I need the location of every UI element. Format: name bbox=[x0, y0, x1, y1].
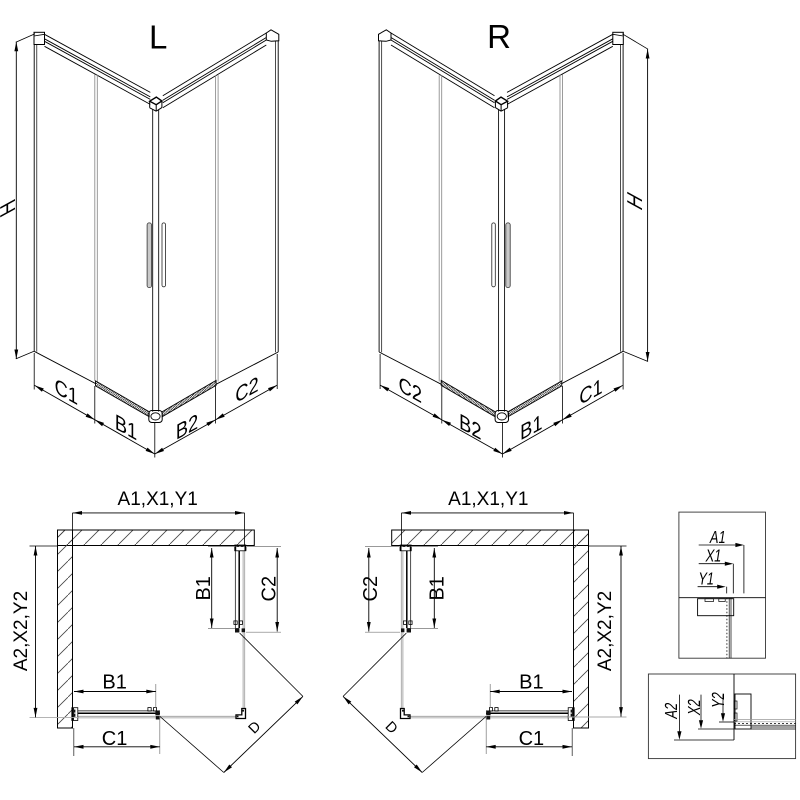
svg-text:A2,X2,Y2: A2,X2,Y2 bbox=[595, 591, 616, 671]
svg-text:C1: C1 bbox=[102, 728, 128, 750]
svg-text:B1: B1 bbox=[193, 576, 215, 600]
svg-text:Y1: Y1 bbox=[697, 570, 716, 589]
svg-text:R: R bbox=[487, 18, 511, 55]
svg-text:A1: A1 bbox=[709, 528, 728, 547]
svg-text:B1: B1 bbox=[519, 672, 543, 694]
svg-text:B1: B1 bbox=[102, 672, 126, 694]
svg-text:Y2: Y2 bbox=[709, 691, 728, 710]
svg-text:A2: A2 bbox=[662, 701, 681, 720]
svg-text:B1: B1 bbox=[427, 576, 449, 600]
svg-text:L: L bbox=[149, 19, 167, 56]
svg-text:X1: X1 bbox=[704, 547, 723, 566]
svg-text:X2: X2 bbox=[685, 698, 704, 717]
svg-text:A1,X1,Y1: A1,X1,Y1 bbox=[448, 489, 528, 510]
svg-text:C2: C2 bbox=[360, 576, 382, 602]
svg-text:C1: C1 bbox=[519, 728, 545, 750]
svg-text:A1,X1,Y1: A1,X1,Y1 bbox=[118, 489, 198, 510]
svg-text:C2: C2 bbox=[259, 576, 281, 602]
svg-text:A2,X2,Y2: A2,X2,Y2 bbox=[11, 591, 32, 671]
